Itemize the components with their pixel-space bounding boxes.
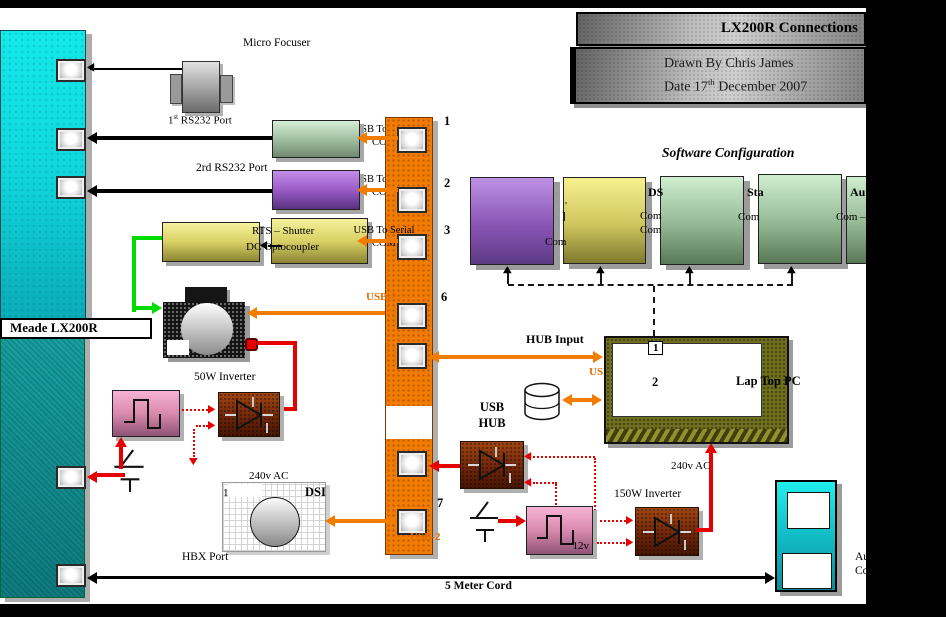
camera-power-wire-v (293, 341, 297, 411)
scope-power-port (56, 466, 86, 489)
dc-feed-vertical (594, 458, 596, 518)
usb-hub-bar (385, 117, 433, 555)
hub-port-down-1 (397, 451, 427, 477)
dc-feed-inverter-arrowhead (626, 516, 633, 525)
dc-feed-inv2-arrowhead (626, 538, 633, 547)
hub-word: HUB (478, 416, 505, 430)
micro-focuser-label: Micro Focuser (243, 37, 310, 50)
cord-arrowhead-right (765, 572, 775, 584)
square-wave-symbol-1 (118, 394, 174, 434)
rs232-cable-2-arrowhead (87, 185, 97, 197)
usb-serial-converter-2 (272, 170, 360, 210)
sw-frag-bracket: ] (562, 210, 566, 223)
rs232-cable-1-arrowhead (87, 132, 97, 144)
hub-cable-3-arrowhead (357, 235, 367, 247)
com-bus-horizontal (508, 284, 793, 286)
ground-symbol-1 (112, 448, 148, 496)
dc50-dotted-2 (196, 425, 208, 427)
telescope-name: Meade LX200R (10, 321, 98, 336)
com-bus-stub-3 (689, 273, 691, 284)
scope-port-1 (56, 59, 86, 82)
shutter-wire-v (132, 236, 136, 312)
dc-supply-50w-box (112, 390, 180, 437)
dc50-dotted-1 (182, 409, 208, 411)
hub-cable-1 (366, 136, 398, 140)
frame-bottom (0, 604, 946, 617)
date-pre: Date 17 (664, 80, 708, 95)
frame-top (0, 0, 946, 8)
ac-wire-arrowhead (705, 443, 717, 453)
focuser-flange-left (170, 74, 182, 104)
hub-cable-1-arrowhead (357, 132, 367, 144)
camera-usb-arrowhead (247, 307, 257, 319)
laptop-usb-port-1: 1 (648, 341, 663, 355)
usb-hub-cable-arrowhead (429, 460, 439, 472)
shutter-wire-h-top (132, 236, 162, 240)
rts-shutter-label: RTS – Shutter (252, 225, 314, 238)
com-bus-drop-to-laptop (653, 286, 655, 336)
com-bus-stub-2 (600, 273, 602, 284)
hbx-port-label: HBX Port (182, 551, 228, 564)
hub-cable-3 (366, 239, 398, 243)
focuser-body (182, 61, 220, 113)
dc-feed-hub2-arrowhead (524, 478, 531, 487)
hub-cable-2-arrowhead (357, 184, 367, 196)
laptop-label: Lap Top PC (736, 374, 801, 388)
hub-port-1 (397, 127, 427, 153)
hub-input-cable (437, 355, 595, 359)
dc50-up-arrowhead (115, 437, 127, 447)
camera-power-wire-h2 (281, 407, 295, 411)
software-box-2 (563, 177, 646, 264)
dsi-port-number: 1 (223, 487, 229, 500)
date-post: December 2007 (715, 80, 808, 95)
sw-frag-au: Au (850, 186, 865, 200)
ground2-wire (498, 519, 518, 523)
rs232-port1-label: 1st RS232 Port (168, 114, 232, 127)
usb-hub-bar-notch (386, 406, 432, 439)
dc-feed-hub2-vertical (555, 484, 557, 508)
title-bar: LX200R Connections (576, 12, 866, 46)
sw-frag-com-dash: Com – (836, 211, 866, 224)
software-box-3 (660, 176, 744, 265)
inverter-50w-label: 50W Inverter (194, 371, 255, 384)
dc-feed-inv2-line (597, 542, 625, 544)
dc-feed-inverter-line (600, 520, 626, 522)
diode-symbol-150w (641, 513, 693, 551)
hub-cable-2 (366, 188, 398, 192)
handbox-screen (787, 492, 830, 529)
camera-panel (167, 340, 189, 355)
focuser-wire (90, 68, 182, 70)
com-bus-arrowhead-3 (685, 266, 694, 273)
focuser-arrowhead (87, 63, 94, 72)
diagram-title: LX200R Connections (721, 20, 858, 37)
hub-input-label: HUB Input (526, 333, 584, 347)
dc-supply-12v-box: 12v (526, 506, 593, 555)
scope-port-3 (56, 176, 86, 199)
dc-12v-label: 12v (573, 540, 590, 553)
dsi-usb-arrowhead (325, 515, 335, 527)
camera-usb-cable (255, 311, 398, 315)
external-drive-cylinder (522, 381, 562, 423)
usb2-tag-camera: USB-2 (366, 291, 397, 304)
sw-frag-com-2: Com (640, 210, 661, 223)
hub-port-input (397, 343, 427, 369)
dsi-blank-band (228, 484, 262, 497)
scope-hbx-port (56, 564, 86, 587)
diode-symbol-usb-hub (466, 446, 518, 484)
hub-port-number-7: 7 (437, 496, 443, 510)
shutter-wire-h-bottom (132, 306, 154, 310)
frame-right (866, 0, 946, 617)
laptop-keyboard (606, 429, 787, 442)
sw-frag-com-1: Com (545, 236, 566, 249)
dsi-lens (250, 497, 300, 547)
com-bus-arrowhead-2 (596, 266, 605, 273)
hub-port-number-6: 6 (441, 290, 447, 304)
shutter-wire-arrowhead (152, 302, 162, 314)
focuser-flange-right (220, 75, 233, 103)
sw-frag-ds: DS (648, 186, 663, 200)
dc50-arrowhead-1 (208, 405, 215, 414)
hub-input-arrowhead-left (429, 351, 439, 363)
dc50-arrowhead-down (189, 458, 198, 465)
diode-symbol-50w (223, 396, 275, 434)
rs232-port2-label: 2rd RS232 Port (196, 162, 268, 175)
cord-arrowhead-left (87, 572, 97, 584)
com-bus-arrowhead-4 (787, 266, 796, 273)
dc-feed-hub2-line (533, 482, 557, 484)
scope-port-2 (56, 128, 86, 151)
telescope-name-plate: Meade LX200R (0, 318, 152, 339)
software-box-1 (470, 177, 554, 265)
rs232-cable-1 (90, 136, 272, 140)
sw-frag-com-3: Com (640, 224, 661, 237)
date-sup: th (708, 77, 715, 87)
hub-port-number-3: 3 (444, 223, 450, 237)
dsi-label: DSI (305, 485, 326, 499)
com-bus-arrowhead-1 (503, 266, 512, 273)
software-box-4 (758, 174, 842, 264)
usb-hub-box-label: USB HUB (462, 399, 522, 431)
ac-240v-label-dsi: 240v AC (249, 470, 288, 483)
drive-arrowhead-right (592, 394, 602, 406)
dc50-up-wire (119, 445, 123, 469)
sw-frag-sta: Sta (747, 186, 764, 200)
dc50-arrowhead-2 (208, 421, 215, 430)
hub-port-number-1: 1 (444, 114, 450, 128)
date-label: Date 17th December 2007 (664, 77, 807, 96)
com-bus-stub-1 (507, 273, 509, 284)
usb-hub-cable (437, 464, 460, 468)
ground2-arrowhead (516, 515, 526, 527)
dsi-usb-cable (333, 519, 397, 523)
ac-240v-label-laptop: 240v AC (671, 460, 710, 473)
dc-feed-hub-arrowhead (524, 452, 531, 461)
rs232-cable-2 (90, 189, 272, 193)
drawn-by-label: Drawn By Chris James (664, 56, 794, 72)
hub-port-number-2: 2 (444, 176, 450, 190)
dc-optocoupler-label: DC Optocoupler (246, 241, 319, 254)
hub-port-6 (397, 303, 427, 329)
usb2-tag-dsi: USB-2 (410, 531, 441, 544)
camera-top (185, 287, 227, 303)
telescope-ota-lower (0, 332, 85, 598)
hub-port-3 (397, 234, 427, 260)
usb-word: USB (480, 400, 504, 414)
laptop-port1-number: 1 (653, 342, 659, 355)
dc50-dotted-down (193, 429, 195, 457)
sw-frag-com-4: Com (738, 211, 759, 224)
drive-arrowhead-left (562, 394, 572, 406)
inverter-150w-label: 150W Inverter (614, 488, 681, 501)
five-meter-cord-label: 5 Meter Cord (445, 580, 512, 593)
five-meter-cord (92, 576, 768, 579)
credit-bar: Drawn By Chris James Date 17th December … (570, 47, 866, 104)
camera-power-wire-h1 (257, 341, 297, 345)
software-config-title: Software Configuration (662, 145, 794, 161)
usb-serial-converter-1 (272, 120, 360, 158)
com-bus-stub-4 (791, 273, 793, 284)
hub-input-arrowhead-right (593, 351, 603, 363)
dc-feed-hub-line (533, 456, 595, 458)
drive-cable (570, 398, 594, 402)
rs232-1-post: RS232 Port (178, 115, 232, 127)
handbox-keypad (782, 553, 832, 589)
lx200r-connection-diagram: LX200R Connections Drawn By Chris James … (0, 0, 946, 617)
laptop-port2-number: 2 (652, 375, 658, 389)
ground-symbol-2 (468, 500, 502, 546)
hub-port-2 (397, 187, 427, 213)
